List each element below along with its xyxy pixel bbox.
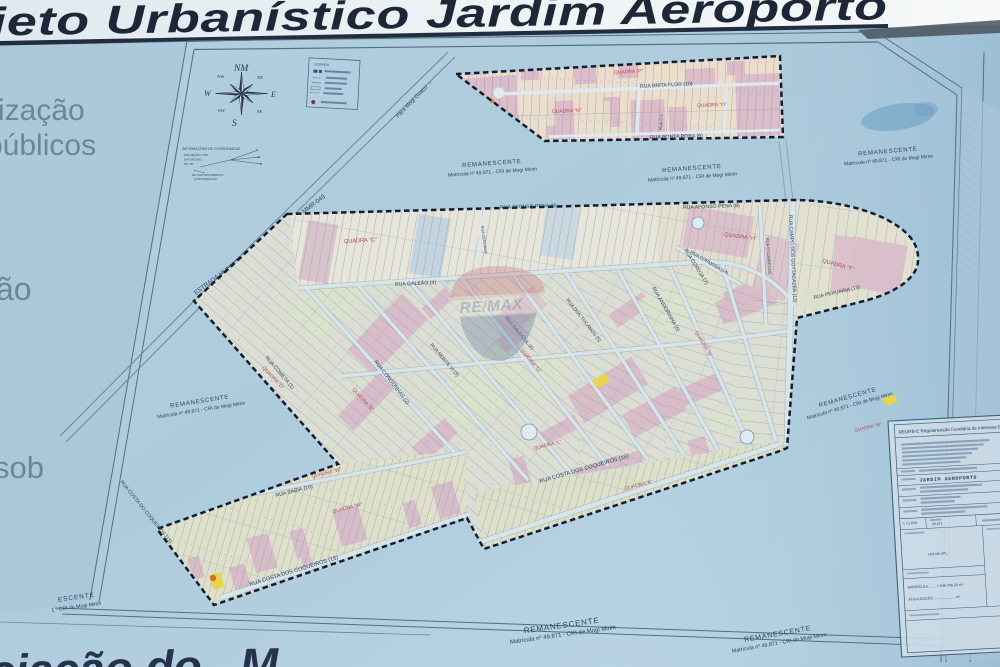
svg-text:NE: NE — [257, 75, 263, 80]
svg-text:A PROSSEGUIR: A PROSSEGUIR — [194, 177, 218, 181]
svg-text:LEGENDA: LEGENDA — [314, 62, 330, 67]
svg-text:SW: SW — [218, 108, 226, 113]
svg-text:INFORMAÇÕES DE COORDENADAS: INFORMAÇÕES DE COORDENADAS — [182, 146, 241, 151]
svg-text:NM: NM — [233, 64, 249, 74]
svg-text:PROJEÇÃO UTM: PROJEÇÃO UTM — [184, 152, 208, 157]
svg-text:MC 45°: MC 45° — [184, 162, 195, 166]
svg-text:SE: SE — [257, 109, 263, 114]
svg-text:S: S — [232, 119, 237, 129]
svg-text:RUA D C: RUA D C — [658, 114, 664, 131]
svg-text:DATUM SAD: DATUM SAD — [184, 158, 202, 162]
svg-text:49.871: 49.871 — [932, 522, 943, 527]
svg-text:NW: NW — [217, 74, 225, 79]
svg-text:E: E — [270, 90, 276, 99]
svg-text:1 / 1.000: 1 / 1.000 — [903, 521, 917, 526]
svg-text:QUADRA “N”: QUADRA “N” — [552, 108, 582, 115]
svg-text:QUADRA “O”: QUADRA “O” — [697, 102, 727, 109]
